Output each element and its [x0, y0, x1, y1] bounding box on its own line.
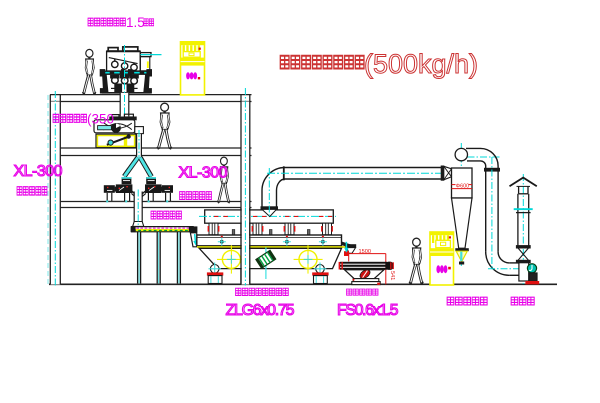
svg-text:1.5: 1.5 [126, 15, 145, 30]
svg-text:XL-300: XL-300 [14, 163, 63, 180]
svg-text:ZLG6x0.75: ZLG6x0.75 [226, 302, 295, 319]
svg-text:(350: (350 [87, 111, 114, 126]
svg-text:541: 541 [389, 271, 395, 280]
svg-text:XL-300: XL-300 [179, 164, 228, 181]
svg-text:(500kg/h): (500kg/h) [364, 49, 478, 79]
svg-text:FS0.6x1.5: FS0.6x1.5 [337, 302, 399, 319]
svg-text:Φ600: Φ600 [456, 184, 469, 190]
svg-text:1500: 1500 [359, 249, 371, 255]
